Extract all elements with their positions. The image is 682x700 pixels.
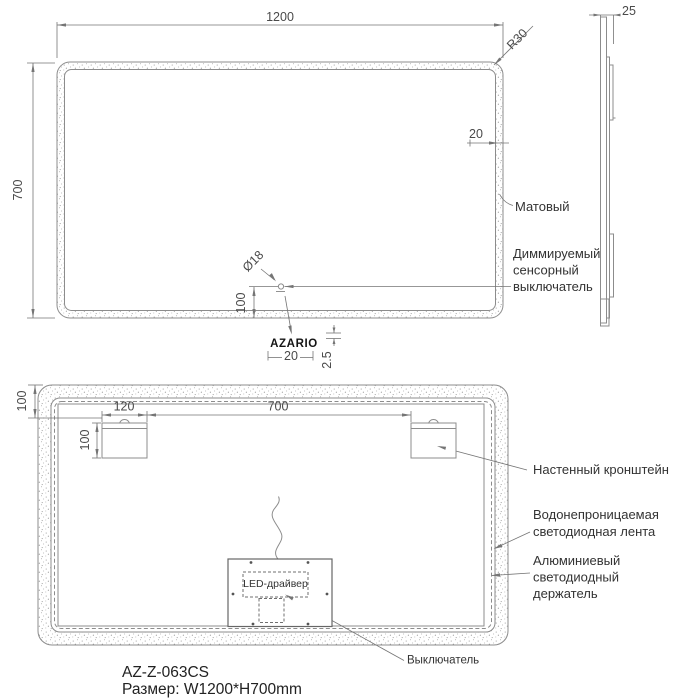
dim-bracket-height: 100 — [78, 430, 92, 451]
label-touch-switch-line3: выключатель — [513, 279, 593, 294]
dim-height-700: 700 — [11, 180, 25, 201]
dim-width-1200: 1200 — [266, 10, 294, 24]
dim-bracket-spacing: 700 — [268, 400, 289, 414]
label-led-holder-line1: Алюминиевый — [533, 553, 620, 568]
label-led-driver: LED-драйвер — [243, 578, 308, 590]
side-glass-panel — [601, 17, 607, 323]
label-corner-radius: R30 — [504, 26, 530, 52]
label-touch-switch-line2: сенсорный — [513, 263, 579, 278]
label-switch: Выключатель — [407, 655, 479, 667]
side-profile — [601, 17, 616, 326]
size-spec: Размер: W1200*H700mm — [122, 681, 302, 698]
dim-frame-width: 20 — [469, 127, 483, 141]
touch-switch-mark — [278, 284, 283, 289]
side-bottom-mount — [610, 234, 614, 297]
label-led-strip-line2: светодиодная лента — [533, 524, 656, 539]
label-matte: Матовый — [515, 199, 569, 214]
dim-logo-width: 20 — [284, 349, 298, 363]
dim-switch-offset: 100 — [234, 293, 248, 314]
dim-logo-height: 2.5 — [320, 351, 334, 368]
dim-thickness-25: 25 — [622, 4, 636, 18]
mirror-glass-area — [65, 70, 496, 311]
wall-bracket-right — [411, 420, 456, 459]
side-top-mount — [610, 65, 614, 120]
side-view: 25 — [589, 4, 636, 326]
label-led-holder-line3: держатель — [533, 586, 598, 601]
rear-view: LED-драйвер 100 120 700 100 Настенный кр… — [15, 385, 669, 667]
label-touch-switch-line1: Диммируемый — [513, 246, 600, 261]
technical-drawing-canvas: 1200 700 R30 20 Матовый Ø18 100 Диммируе… — [0, 0, 682, 700]
label-wall-bracket: Настенный кронштейн — [533, 462, 669, 477]
title-block: AZ-Z-063CS Размер: W1200*H700mm — [122, 664, 302, 698]
label-led-strip-line1: Водонепроницаемая — [533, 507, 659, 522]
driver-box — [228, 559, 332, 627]
label-led-holder-line2: светодиодный — [533, 570, 619, 585]
model-code: AZ-Z-063CS — [122, 664, 209, 681]
dim-top-offset: 100 — [15, 391, 29, 412]
wall-bracket-left — [102, 420, 147, 459]
front-view: 1200 700 R30 20 Матовый Ø18 100 Диммируе… — [11, 10, 600, 369]
dim-bracket-width: 120 — [114, 400, 135, 414]
